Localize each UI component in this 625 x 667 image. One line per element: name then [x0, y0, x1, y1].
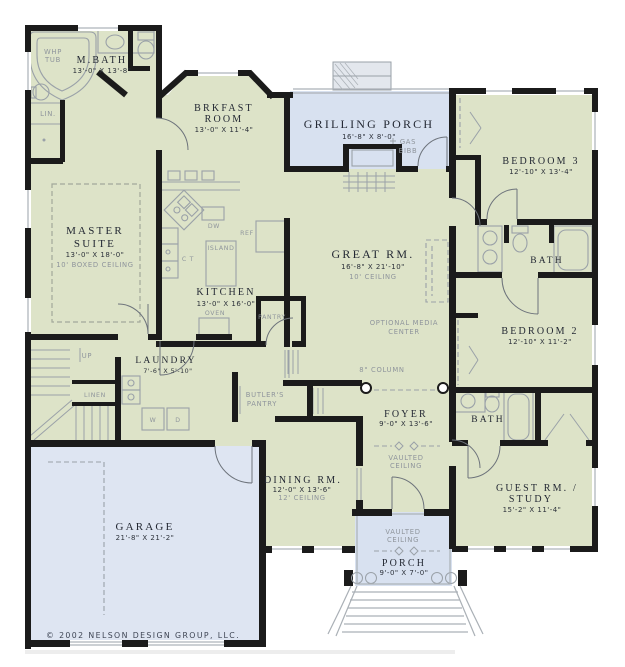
room-label-brkfast-1: BRKFAST	[194, 103, 254, 114]
room-dim-guest: 15'-2" X 11'-4"	[503, 506, 562, 514]
foyer-vaulted-label-2: CEILING	[390, 462, 422, 470]
room-label-porch: PORCH	[382, 558, 426, 569]
room-label-master-1: MASTER	[66, 225, 124, 237]
media-center-label-1: OPTIONAL MEDIA	[370, 319, 438, 327]
dryer-label: D	[175, 417, 180, 424]
window	[25, 298, 31, 332]
room-note-master: 10' BOXED CEILING	[56, 261, 134, 269]
room-dim-garage: 21'-8" X 21'-2"	[116, 534, 175, 542]
room-dim-dining: 12'-0" X 13'-6"	[273, 486, 332, 494]
floor-plan-canvas: WHP TUB M.BATH 13'-0" X 13'-8" LIN. MAST…	[0, 0, 625, 667]
window	[272, 546, 302, 553]
foyer-vaulted-label-1: VAULTED	[388, 454, 423, 462]
window	[78, 25, 118, 31]
room-label-bath2: BATH	[471, 415, 505, 425]
window	[314, 546, 342, 553]
window	[25, 52, 31, 90]
butler-label-2: PANTRY	[247, 400, 277, 408]
washer-label: W	[150, 417, 157, 424]
gas-bibb-label-1: GAS	[400, 138, 416, 146]
room-dim-bed3: 12'-10" X 13'-4"	[509, 168, 573, 176]
whp-tub-label-2: TUB	[44, 56, 61, 64]
room-dim-grilling-porch: 16'-8" X 8'-0"	[342, 133, 396, 141]
room-label-foyer: FOYER	[384, 409, 428, 420]
room-dim-bed2: 12'-10" X 11'-2"	[508, 338, 572, 346]
driveway-edge	[25, 650, 455, 654]
room-dim-brkfast: 13'-0" X 11'-4"	[195, 126, 254, 134]
ref-label: REF	[240, 230, 254, 237]
room-dim-master: 13'-0" X 18'-0"	[66, 251, 125, 259]
linen-closet-label: LIN.	[40, 110, 56, 118]
oven-label: OVEN	[205, 310, 225, 317]
room-label-mbath: M.BATH	[77, 55, 128, 66]
window	[198, 70, 238, 76]
pantry-label: PANTRY	[258, 314, 286, 321]
room-label-bed2: BEDROOM 2	[501, 326, 578, 337]
garage-door	[70, 640, 122, 647]
room-label-bath1: BATH	[530, 256, 564, 266]
media-center-label-2: CENTER	[388, 328, 420, 336]
room-label-guest-2: STUDY	[509, 494, 553, 505]
room-note-dining: 12' CEILING	[278, 494, 326, 502]
room-label-master-2: SUITE	[74, 238, 116, 250]
room-dim-kitchen: 13'-0" X 16'-0"	[197, 300, 256, 308]
window	[25, 190, 31, 228]
window	[468, 546, 494, 552]
room-dim-porch: 9'-0" X 7'-0"	[380, 569, 429, 577]
room-note-great: 10' CEILING	[349, 273, 397, 281]
room-label-bed3: BEDROOM 3	[502, 156, 579, 167]
room-label-laundry: LAUNDRY	[135, 356, 196, 366]
window	[486, 88, 512, 94]
porch-vaulted-label-1: VAULTED	[385, 528, 420, 536]
linen-label: LINEN	[84, 392, 106, 399]
room-dim-great: 16'-8" X 21'-10"	[341, 263, 405, 271]
window	[592, 325, 598, 365]
room-dim-mbath: 13'-0" X 13'-8"	[73, 67, 132, 75]
whp-tub-label-1: WHP	[44, 48, 62, 56]
room-label-brkfast-2: ROOM	[205, 114, 244, 125]
butler-label-1: BUTLER'S	[246, 391, 284, 399]
column-label: 8" COLUMN	[359, 366, 404, 374]
ct-label: C T	[182, 256, 194, 263]
gas-bibb-label-2: BIBB	[399, 147, 418, 155]
porch-vaulted-label-2: CEILING	[387, 536, 419, 544]
floor-plan-page: WHP TUB M.BATH 13'-0" X 13'-8" LIN. MAST…	[0, 0, 625, 667]
room-label-garage: GARAGE	[115, 521, 174, 533]
room-dim-foyer: 9'-0" X 13'-6"	[379, 420, 433, 428]
copyright-text: © 2002 NELSON DESIGN GROUP, LLC.	[46, 631, 240, 640]
up-label: UP	[82, 352, 92, 360]
window	[506, 546, 532, 552]
garage-floor	[31, 446, 259, 642]
island-label: ISLAND	[207, 245, 234, 252]
column-right	[438, 383, 448, 393]
garage-door	[148, 640, 224, 647]
room-label-great: GREAT RM.	[332, 247, 415, 261]
room-label-guest-1: GUEST RM. /	[496, 483, 578, 494]
dw-label: DW	[208, 223, 220, 230]
window	[592, 112, 598, 150]
porch-steps	[328, 586, 483, 636]
window	[544, 546, 570, 552]
window	[592, 468, 598, 506]
room-label-kitchen: KITCHEN	[196, 287, 255, 298]
room-label-dining: DINING RM.	[264, 475, 342, 486]
column-left	[361, 383, 371, 393]
window	[556, 88, 584, 94]
room-label-grilling-porch: GRILLING PORCH	[304, 117, 434, 131]
room-dim-laundry: 7'-6" X 5'-10"	[143, 368, 192, 375]
